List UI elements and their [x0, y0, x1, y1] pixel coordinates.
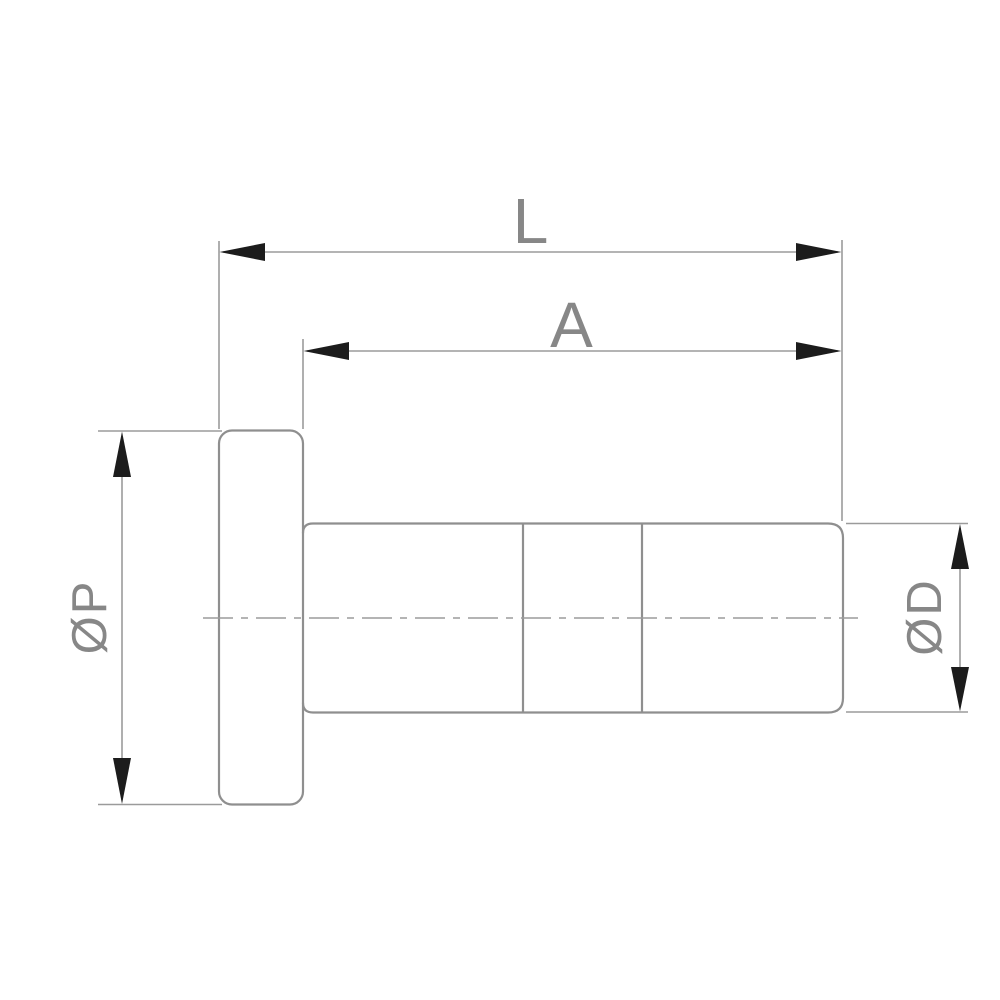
drawing-canvas: L A ØP ØD [0, 0, 1000, 1000]
arrow-A-right [796, 342, 842, 360]
arrow-P-top [113, 432, 131, 478]
technical-drawing: L A ØP ØD [0, 0, 1000, 1000]
arrow-L-right [796, 243, 842, 261]
arrow-P-bottom [113, 758, 131, 804]
label-flange-diameter: ØP [63, 580, 117, 655]
arrow-A-left [304, 342, 350, 360]
label-total-length: L [513, 185, 550, 257]
dimension-lines-group [98, 240, 968, 805]
arrow-D-bottom [951, 667, 969, 712]
arrow-L-left [220, 243, 266, 261]
label-body-diameter: ØD [898, 578, 952, 656]
arrow-D-top [951, 524, 969, 569]
label-body-length: A [550, 289, 594, 361]
